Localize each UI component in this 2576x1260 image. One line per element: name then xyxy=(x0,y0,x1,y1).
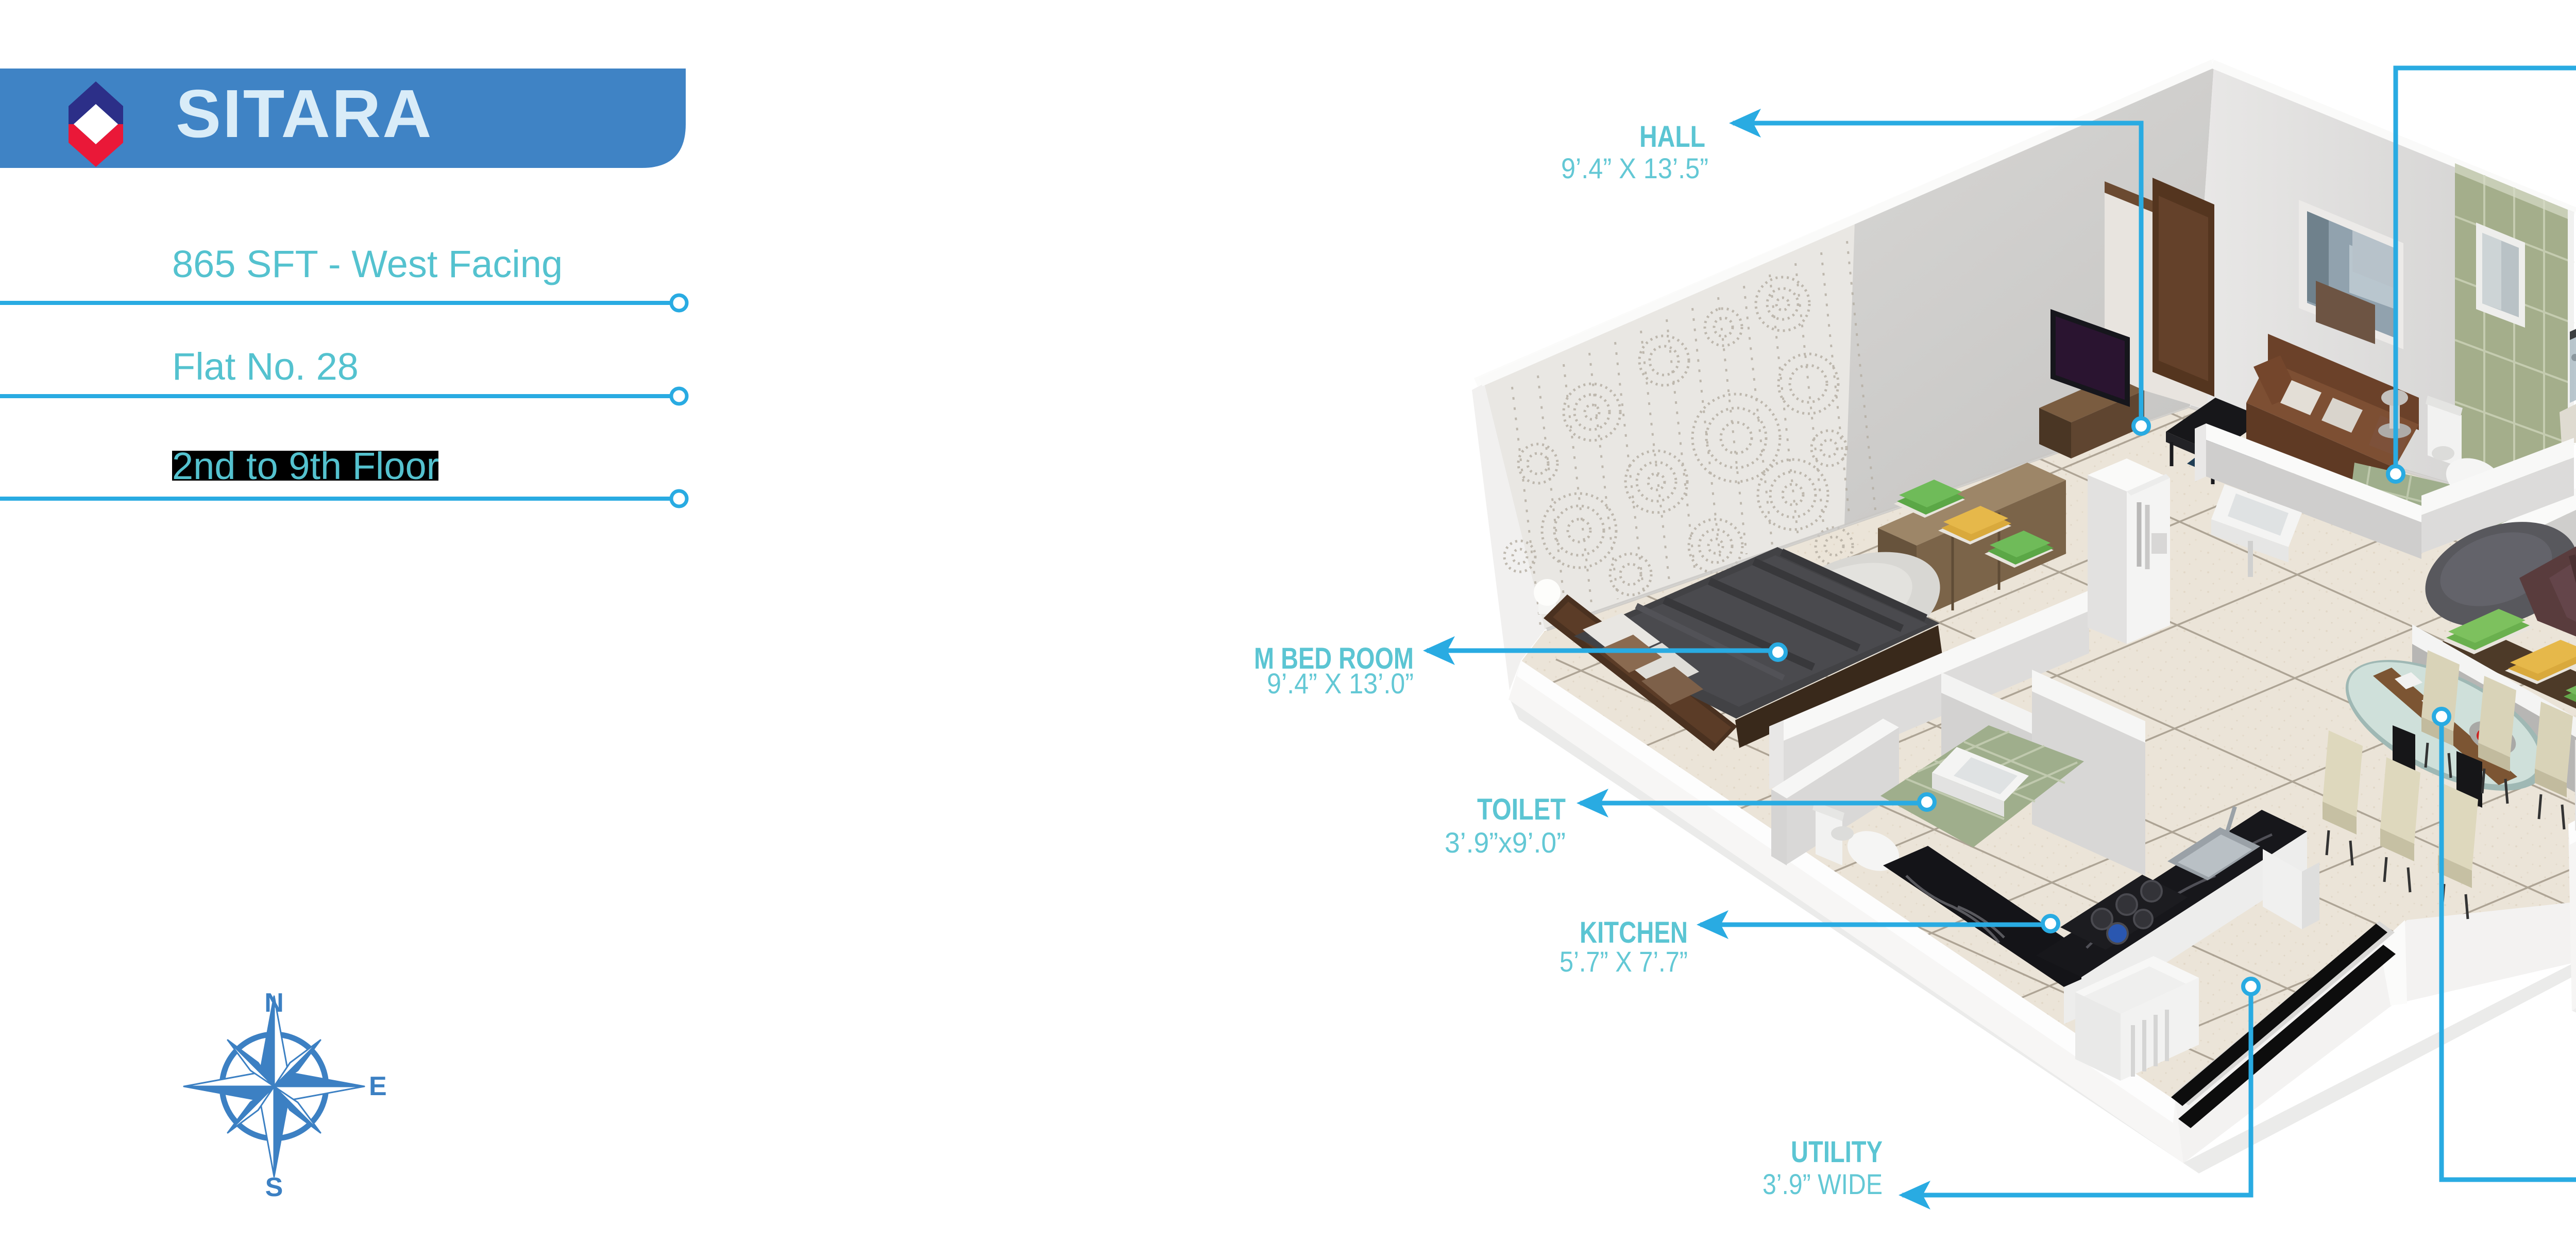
svg-text:2nd to 9th Floor: 2nd to 9th Floor xyxy=(172,445,439,487)
svg-text:E: E xyxy=(369,1071,387,1101)
svg-text:N: N xyxy=(264,988,284,1018)
svg-text:Flat No. 28: Flat No. 28 xyxy=(172,345,359,388)
svg-text:3’.9” WIDE: 3’.9” WIDE xyxy=(1762,1168,1883,1200)
svg-text:KITCHEN: KITCHEN xyxy=(1580,916,1688,949)
svg-text:9’.4” X 13’.5”: 9’.4” X 13’.5” xyxy=(1561,152,1708,184)
svg-text:5’.7” X 7’.7”: 5’.7” X 7’.7” xyxy=(1560,945,1688,978)
svg-text:UTILITY: UTILITY xyxy=(1791,1135,1883,1169)
svg-text:3’.9”x9’.0”: 3’.9”x9’.0” xyxy=(1445,826,1566,859)
svg-text:HALL: HALL xyxy=(1639,120,1705,154)
svg-text:865 SFT - West Facing: 865 SFT - West Facing xyxy=(172,243,563,285)
svg-text:S: S xyxy=(265,1172,283,1202)
svg-text:9’.4” X 13’.0”: 9’.4” X 13’.0” xyxy=(1267,667,1414,700)
svg-text:SITARA: SITARA xyxy=(176,76,433,151)
svg-text:TOILET: TOILET xyxy=(1477,793,1566,826)
